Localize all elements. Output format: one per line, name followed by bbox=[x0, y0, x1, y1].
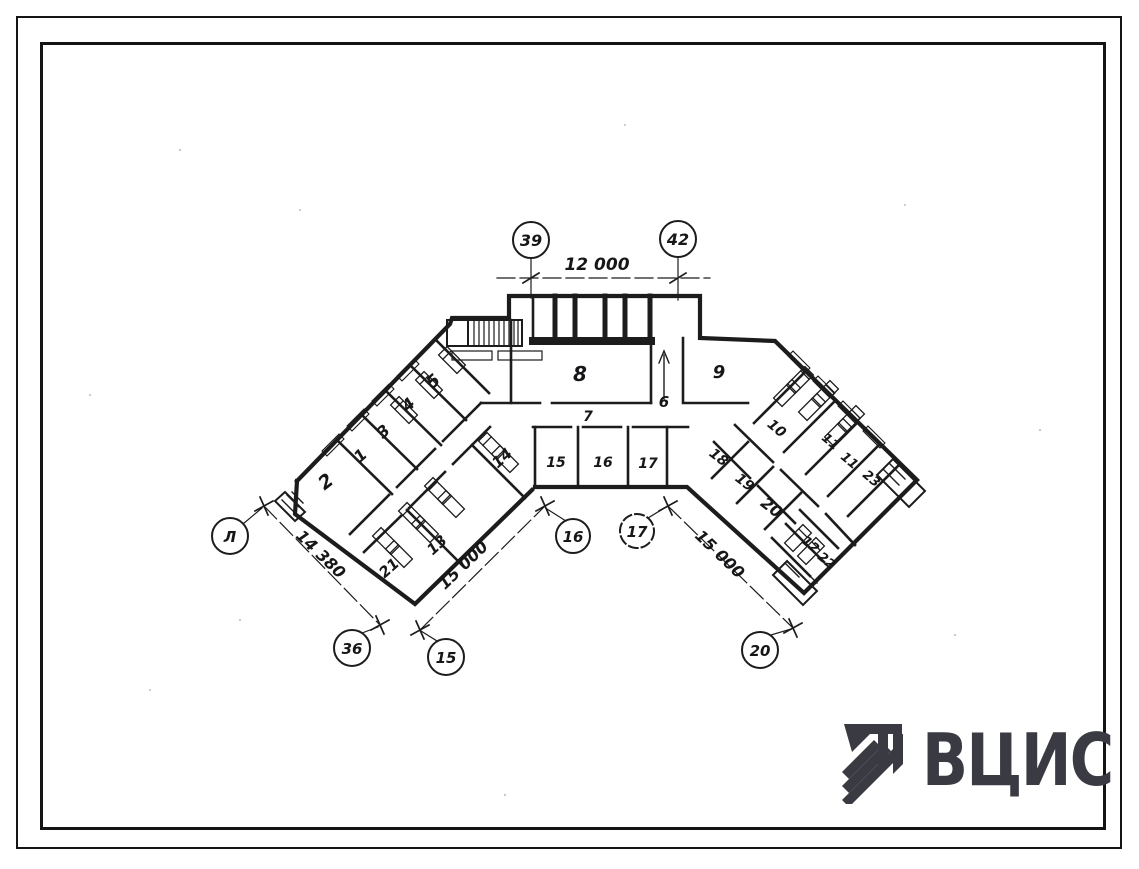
stairs-right-lower bbox=[773, 557, 817, 605]
room-label-9: 9 bbox=[713, 362, 726, 383]
room-label-15: 15 bbox=[546, 455, 566, 471]
room-label-18: 18 bbox=[706, 445, 731, 470]
dim-12000: 12 000 bbox=[564, 255, 629, 275]
room-label-7: 7 bbox=[583, 409, 593, 425]
room-label-17: 17 bbox=[638, 456, 658, 472]
axis-marker-36: 36 bbox=[334, 630, 370, 666]
axis-marker-42: 42 bbox=[660, 221, 696, 257]
room-label-14: 14 bbox=[488, 444, 516, 471]
room-label-11b: 11 bbox=[837, 450, 861, 473]
vcis-logo: ВЦИС bbox=[840, 720, 1139, 804]
staircase-top bbox=[447, 320, 542, 360]
room-label-8: 8 bbox=[573, 362, 587, 386]
room-label-2: 2 bbox=[314, 469, 338, 494]
axis-marker-20: 20 bbox=[742, 632, 778, 668]
axis-label-39: 39 bbox=[520, 231, 542, 250]
axis-label-16: 16 bbox=[563, 528, 584, 546]
room-label-6: 6 bbox=[659, 393, 669, 411]
axis-marker-15: 15 bbox=[428, 639, 464, 675]
axis-marker-17: 17 bbox=[620, 514, 654, 548]
room-label-11a: 11 bbox=[818, 431, 842, 454]
room-label-12: 12 bbox=[798, 534, 822, 557]
axis-marker-L: Л bbox=[212, 518, 248, 554]
vcis-logo-text: ВЦИС bbox=[922, 720, 1112, 800]
room-label-1: 1 bbox=[350, 445, 371, 467]
vcis-logo-icon bbox=[840, 720, 916, 804]
axis-label-36: 36 bbox=[342, 640, 363, 658]
stair-arrow bbox=[659, 351, 669, 399]
tip-hatch-left bbox=[275, 492, 305, 521]
room-label-23: 23 bbox=[859, 468, 883, 491]
axis-marker-39: 39 bbox=[513, 222, 549, 258]
axis-label-42: 42 bbox=[666, 230, 689, 249]
bed-symbols bbox=[373, 347, 865, 568]
axis-marker-16: 16 bbox=[556, 519, 590, 553]
room-label-10: 10 bbox=[764, 416, 789, 441]
room-label-3: 3 bbox=[373, 421, 394, 443]
room-label-16: 16 bbox=[593, 455, 613, 471]
axis-label-17: 17 bbox=[627, 523, 648, 541]
room-label-13: 13 bbox=[423, 531, 451, 558]
axis-label-L: Л bbox=[223, 528, 237, 546]
axis-label-20: 20 bbox=[750, 642, 771, 660]
axis-label-15: 15 bbox=[436, 649, 457, 667]
room-label-20: 20 bbox=[757, 493, 786, 522]
room-label-19: 19 bbox=[732, 470, 757, 495]
window-mullions bbox=[555, 296, 650, 338]
